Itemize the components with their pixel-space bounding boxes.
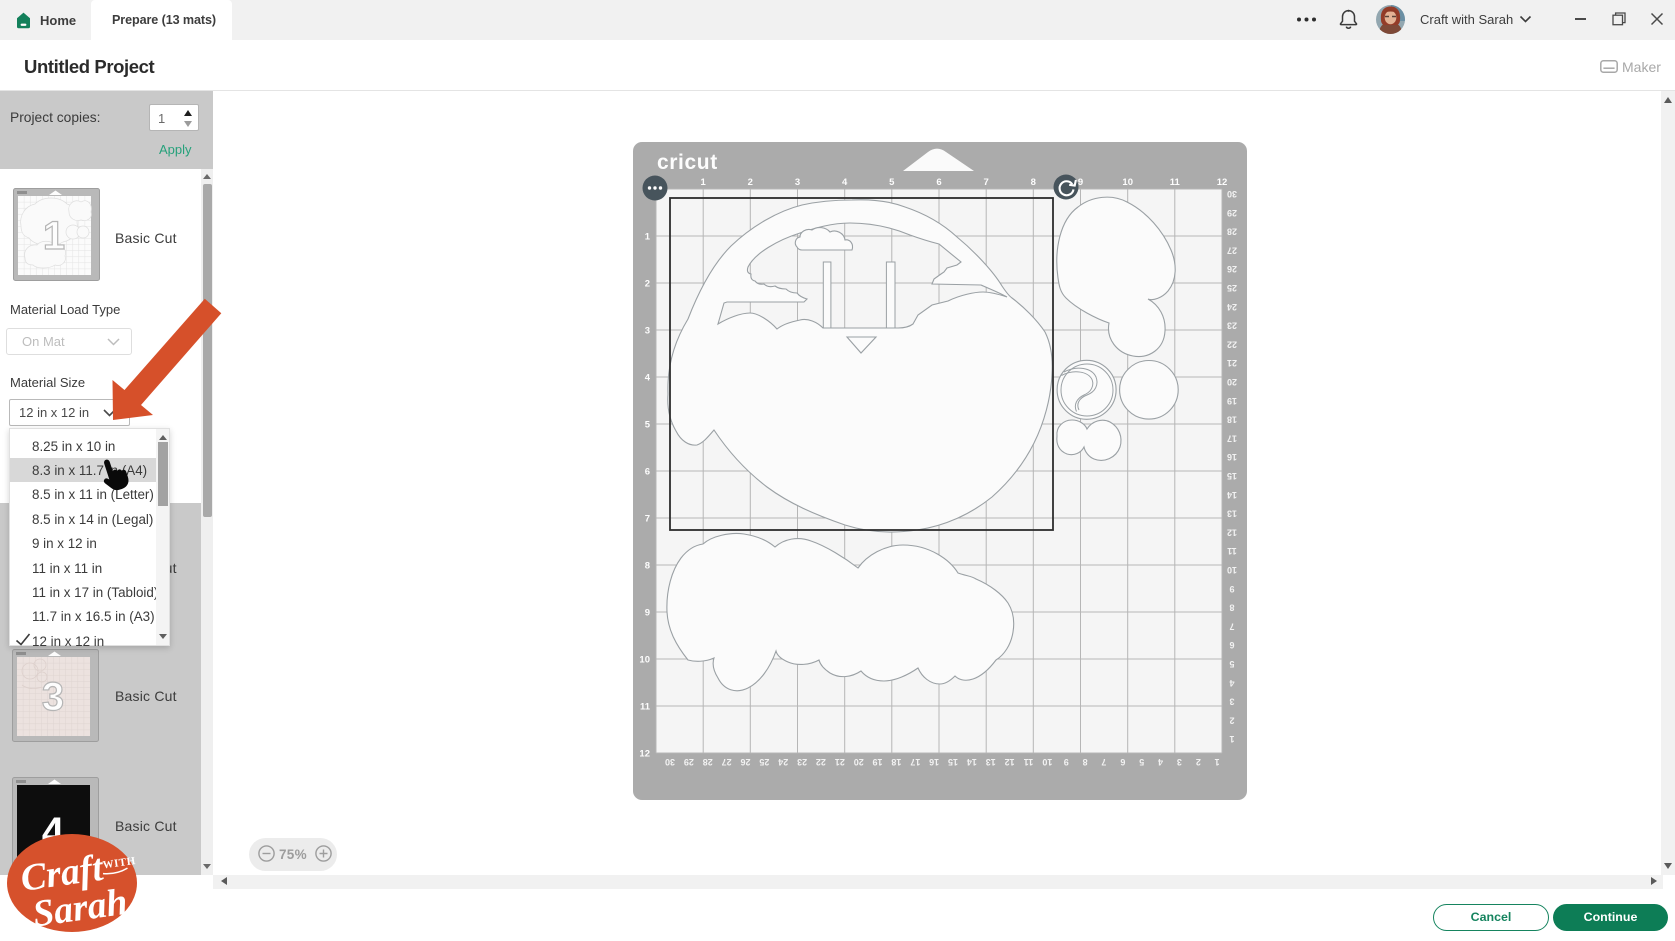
svg-text:6: 6: [936, 177, 941, 188]
svg-text:3: 3: [42, 675, 64, 719]
svg-text:12: 12: [1227, 527, 1237, 537]
svg-text:8: 8: [1031, 177, 1036, 188]
svg-text:21: 21: [835, 757, 845, 767]
svg-text:4: 4: [645, 373, 651, 384]
svg-text:20: 20: [854, 757, 864, 767]
svg-text:7: 7: [984, 177, 989, 188]
svg-text:23: 23: [797, 757, 807, 767]
svg-text:26: 26: [1227, 264, 1237, 274]
svg-text:24: 24: [1227, 302, 1237, 312]
svg-text:11: 11: [1024, 757, 1034, 767]
svg-text:13: 13: [1227, 509, 1237, 519]
svg-text:5: 5: [645, 420, 651, 431]
svg-text:20: 20: [1227, 377, 1237, 387]
svg-text:9: 9: [1064, 757, 1069, 767]
svg-text:9: 9: [645, 608, 650, 619]
svg-text:9: 9: [1078, 177, 1083, 188]
svg-text:10: 10: [1227, 565, 1237, 575]
svg-text:23: 23: [1227, 321, 1237, 331]
svg-text:3: 3: [1229, 697, 1234, 707]
svg-text:9: 9: [1229, 584, 1234, 594]
svg-text:4: 4: [1158, 757, 1163, 767]
svg-text:22: 22: [1227, 339, 1237, 349]
svg-text:3: 3: [795, 177, 800, 188]
svg-text:8: 8: [1083, 757, 1088, 767]
svg-text:24: 24: [778, 757, 788, 767]
svg-text:1: 1: [645, 232, 651, 243]
svg-text:11: 11: [1170, 177, 1181, 188]
svg-text:7: 7: [1229, 621, 1234, 631]
svg-text:27: 27: [1227, 245, 1237, 255]
svg-text:8: 8: [645, 561, 650, 572]
svg-text:4: 4: [1229, 678, 1234, 688]
svg-text:5: 5: [889, 177, 895, 188]
svg-text:19: 19: [1227, 396, 1237, 406]
svg-text:29: 29: [1227, 208, 1237, 218]
svg-text:5: 5: [1139, 757, 1144, 767]
svg-text:17: 17: [910, 757, 920, 767]
svg-text:2: 2: [748, 177, 753, 188]
svg-text:19: 19: [872, 757, 882, 767]
svg-text:16: 16: [929, 757, 939, 767]
svg-text:26: 26: [740, 757, 750, 767]
svg-text:2: 2: [645, 279, 650, 290]
svg-text:1: 1: [701, 177, 707, 188]
svg-text:27: 27: [722, 757, 732, 767]
svg-text:6: 6: [1120, 757, 1125, 767]
svg-text:2: 2: [1196, 757, 1201, 767]
svg-text:17: 17: [1227, 433, 1237, 443]
svg-text:25: 25: [1227, 283, 1237, 293]
svg-text:8: 8: [1229, 603, 1234, 613]
svg-text:10: 10: [639, 655, 650, 666]
svg-text:1: 1: [43, 214, 65, 258]
svg-text:3: 3: [645, 326, 650, 337]
svg-text:11: 11: [1227, 546, 1237, 556]
svg-text:10: 10: [1122, 177, 1133, 188]
svg-text:11: 11: [640, 702, 651, 713]
svg-text:6: 6: [645, 467, 650, 478]
svg-text:28: 28: [1227, 227, 1237, 237]
svg-text:3: 3: [1177, 757, 1182, 767]
svg-text:14: 14: [1227, 490, 1237, 500]
svg-text:6: 6: [1229, 640, 1234, 650]
svg-text:21: 21: [1227, 358, 1237, 368]
svg-text:28: 28: [703, 757, 713, 767]
svg-text:12: 12: [1005, 757, 1015, 767]
svg-text:22: 22: [816, 757, 826, 767]
svg-text:cricut: cricut: [657, 151, 718, 174]
svg-text:25: 25: [759, 757, 769, 767]
svg-text:29: 29: [684, 757, 694, 767]
svg-text:14: 14: [967, 757, 977, 767]
svg-text:12: 12: [639, 749, 650, 760]
svg-text:13: 13: [986, 757, 996, 767]
svg-text:4: 4: [842, 177, 848, 188]
svg-text:16: 16: [1227, 452, 1237, 462]
svg-text:15: 15: [948, 757, 958, 767]
svg-text:2: 2: [1229, 715, 1234, 725]
svg-text:18: 18: [891, 757, 901, 767]
svg-text:15: 15: [1227, 471, 1237, 481]
svg-text:18: 18: [1227, 415, 1237, 425]
svg-text:5: 5: [1229, 659, 1234, 669]
svg-text:10: 10: [1042, 757, 1052, 767]
svg-text:1: 1: [1229, 734, 1234, 744]
svg-text:12: 12: [1217, 177, 1228, 188]
svg-text:7: 7: [645, 514, 650, 525]
svg-text:1: 1: [1215, 757, 1220, 767]
svg-text:30: 30: [1227, 189, 1237, 199]
svg-text:7: 7: [1101, 757, 1106, 767]
svg-text:30: 30: [665, 757, 675, 767]
